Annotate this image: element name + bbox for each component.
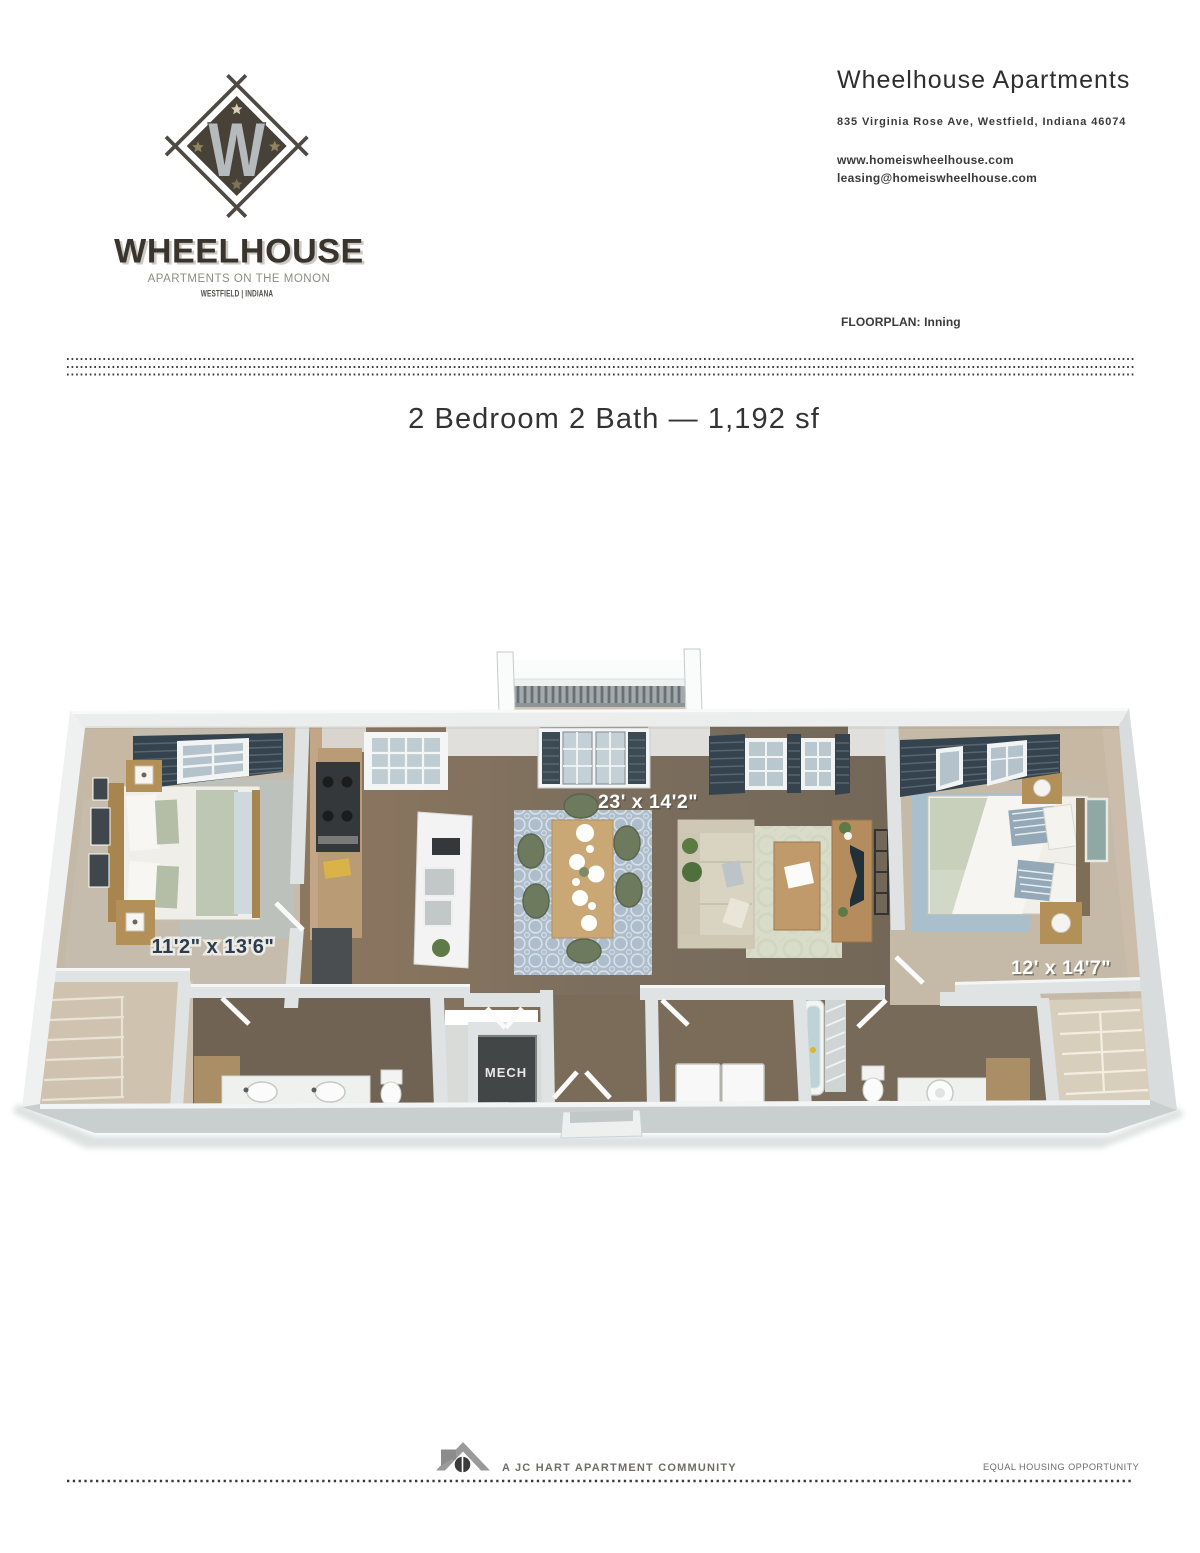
svg-text:APARTMENTS ON THE MONON: APARTMENTS ON THE MONON	[148, 273, 331, 285]
svg-text:W: W	[208, 107, 265, 192]
svg-text:12' x 14'7": 12' x 14'7"	[1011, 957, 1111, 979]
svg-text:MECH: MECH	[485, 1065, 527, 1080]
svg-text:23' x 14'2": 23' x 14'2"	[598, 791, 698, 813]
svg-text:WHEELHOUSE: WHEELHOUSE	[114, 232, 364, 270]
svg-text:11'2" x 13'6": 11'2" x 13'6"	[152, 936, 275, 958]
svg-text:WESTFIELD | INDIANA: WESTFIELD | INDIANA	[201, 288, 274, 298]
